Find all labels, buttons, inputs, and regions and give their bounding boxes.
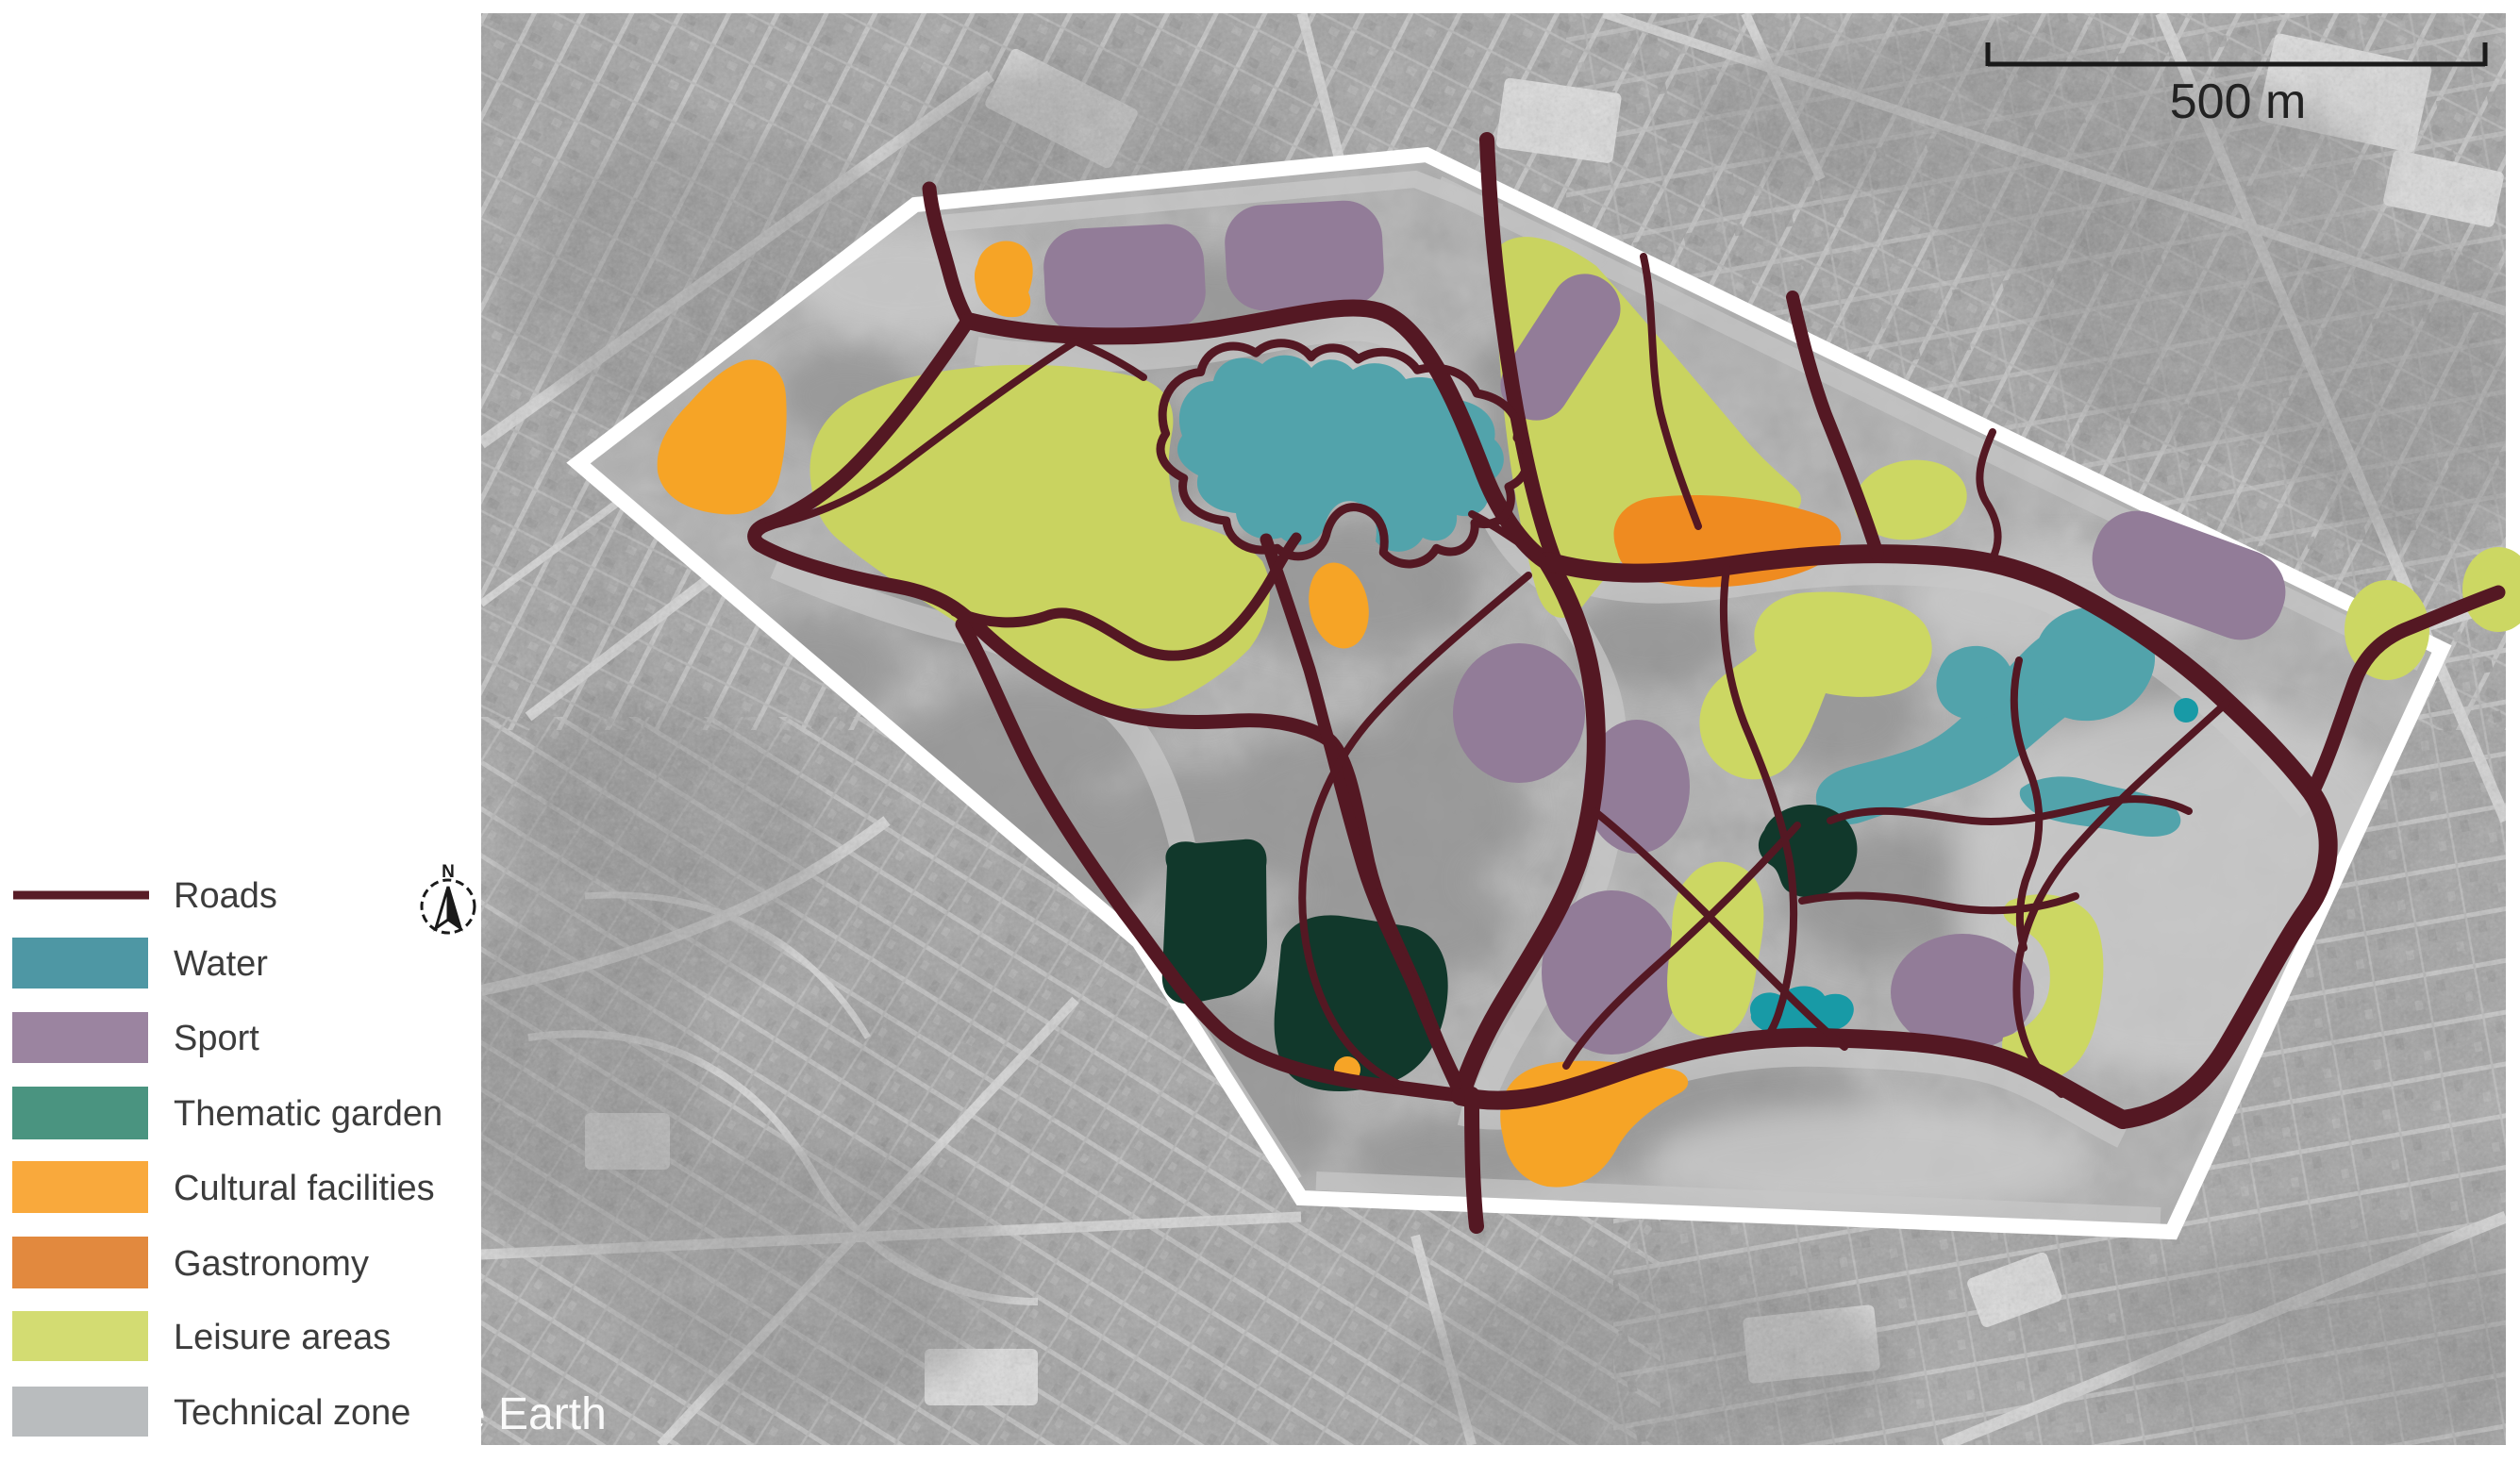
svg-text:Cultural facilities: Cultural facilities bbox=[174, 1169, 435, 1208]
svg-text:Thematic garden: Thematic garden bbox=[174, 1094, 442, 1134]
svg-text:Roads: Roads bbox=[174, 876, 277, 916]
svg-text:Water: Water bbox=[174, 944, 268, 984]
svg-text:Technical zone: Technical zone bbox=[174, 1393, 410, 1433]
svg-text:500 m: 500 m bbox=[2170, 75, 2307, 129]
svg-text:Sport: Sport bbox=[174, 1019, 259, 1058]
svg-text:e Earth: e Earth bbox=[460, 1389, 607, 1439]
svg-text:N: N bbox=[442, 862, 455, 882]
svg-text:Leisure areas: Leisure areas bbox=[174, 1318, 391, 1357]
svg-text:Gastronomy: Gastronomy bbox=[174, 1244, 369, 1284]
